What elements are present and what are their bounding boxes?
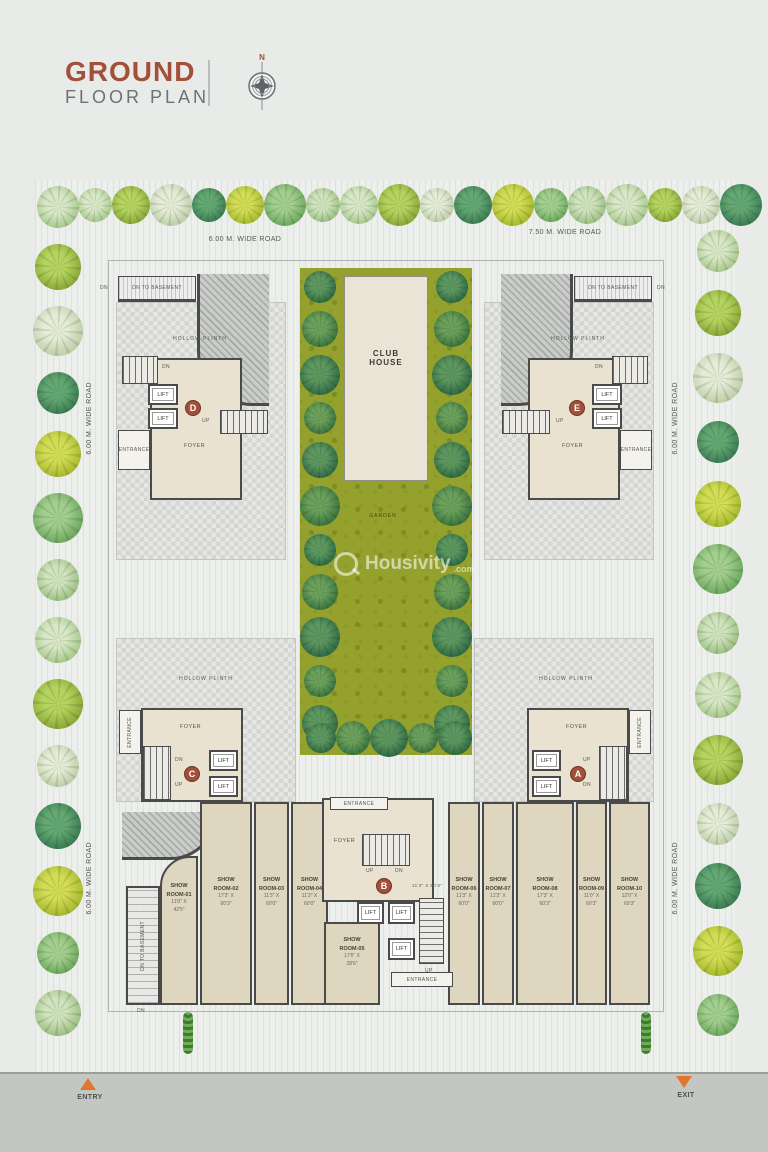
- showroom-09: SHOWROOM-0911'0" X60'3": [576, 802, 607, 1005]
- showroom-01: SHOWROOM-0111'0" X42'5": [160, 856, 198, 1005]
- foyer-e-label: FOYER: [562, 443, 583, 449]
- entrance-b-top: ENTRANCE: [330, 797, 388, 810]
- lift-b-1: LIFT: [357, 902, 384, 924]
- garden-tree-column-left: [301, 271, 339, 741]
- tree-icon: [302, 442, 338, 478]
- entrance-a: ENTRANCE: [629, 710, 651, 754]
- tree-icon: [697, 803, 739, 845]
- title-line2: FLOOR PLAN: [65, 86, 209, 109]
- entrance-b-top-label: ENTRANCE: [344, 801, 375, 807]
- lift-label: LIFT: [541, 758, 552, 764]
- tree-icon: [420, 188, 454, 222]
- road-label-left-lower: 6.00 M. WIDE ROAD: [86, 842, 93, 915]
- dn-marker-ramp: DN: [137, 1008, 145, 1014]
- club-house: CLUB HOUSE: [344, 276, 428, 481]
- entrance-b-bottom-label: ENTRANCE: [407, 977, 438, 983]
- hollow-plinth-label-e1: HOLLOW PLINTH: [551, 336, 605, 342]
- tree-icon: [35, 431, 81, 477]
- watermark-logo-icon: [334, 552, 358, 576]
- showroom-08: SHOWROOM-0817'3" X60'3": [516, 802, 574, 1005]
- watermark-brand: Housivity: [365, 553, 451, 575]
- tree-icon: [304, 665, 336, 697]
- stairs-b-up-label: UP: [366, 868, 374, 874]
- tree-column-right: [694, 230, 742, 1036]
- tree-icon: [37, 559, 79, 601]
- stairs-a: [599, 746, 627, 800]
- basement-ramp-d-label: DN TO BASEMENT: [132, 285, 182, 291]
- stairs-e-upper: [612, 356, 648, 384]
- tree-icon: [695, 672, 741, 718]
- title-divider: [208, 60, 210, 106]
- tree-icon: [35, 617, 81, 663]
- lift-label: LIFT: [601, 416, 612, 422]
- tree-icon: [695, 290, 741, 336]
- foyer-a-label: FOYER: [566, 724, 587, 730]
- tree-icon: [192, 188, 226, 222]
- bottom-road: [0, 1072, 768, 1152]
- tree-icon: [695, 481, 741, 527]
- club-house-label2: HOUSE: [345, 358, 427, 367]
- tree-icon: [648, 188, 682, 222]
- tree-icon: [112, 186, 150, 224]
- basement-ramp-e: DN TO BASEMENT: [574, 276, 652, 302]
- tree-icon: [697, 994, 739, 1036]
- stairs-e-lower: [502, 410, 550, 434]
- tree-icon: [33, 866, 83, 916]
- dn-marker-d: DN: [100, 285, 108, 291]
- tree-icon: [304, 534, 336, 566]
- stairs-b-side: [419, 898, 444, 964]
- stairs-a-up-label: UP: [583, 757, 591, 763]
- showroom-02: SHOWROOM-0217'3" X60'3": [200, 802, 252, 1005]
- lift-label: LIFT: [396, 946, 407, 952]
- stairs-b-main: [362, 834, 410, 866]
- road-label-left-upper: 6.00 M. WIDE ROAD: [86, 382, 93, 455]
- tree-icon: [306, 188, 340, 222]
- dn-marker-e: DN: [657, 285, 665, 291]
- garden-label: GARDEN: [369, 513, 396, 519]
- hollow-plinth-label-c: HOLLOW PLINTH: [179, 676, 233, 682]
- lift-d-1: LIFT: [148, 384, 178, 405]
- showroom-07: SHOWROOM-0711'3" X60'0": [482, 802, 514, 1005]
- tree-icon: [370, 719, 408, 757]
- lift-b-2: LIFT: [388, 902, 415, 924]
- entrance-c-label: ENTRANCE: [127, 717, 133, 748]
- entrance-d-label: ENTRANCE: [119, 447, 150, 453]
- tower-b-badge: B: [376, 878, 392, 894]
- basement-ramp-showroom-label: DN TO BASEMENT: [140, 921, 146, 971]
- tree-icon: [720, 184, 762, 226]
- foyer-d-label: FOYER: [184, 443, 205, 449]
- entrance-a-label: ENTRANCE: [637, 717, 643, 748]
- tree-icon: [302, 574, 338, 610]
- watermark-tld: .com: [454, 564, 475, 574]
- stairs-d-lower: [220, 410, 268, 434]
- road-label-top-left: 6.00 M. WIDE ROAD: [209, 236, 282, 243]
- tree-row-top: [78, 183, 722, 227]
- foyer-b-label: FOYER: [334, 838, 355, 844]
- tree-icon: [78, 188, 112, 222]
- tree-icon: [697, 421, 739, 463]
- tree-icon: [35, 990, 81, 1036]
- tree-icon: [33, 493, 83, 543]
- entrance-e-label: ENTRANCE: [621, 447, 652, 453]
- tree-icon: [454, 186, 492, 224]
- compass-icon: N: [240, 50, 284, 112]
- tree-icon: [432, 355, 472, 395]
- lift-label: LIFT: [157, 416, 168, 422]
- tree-icon: [300, 486, 340, 526]
- tower-e-badge: E: [569, 400, 585, 416]
- tree-icon: [693, 926, 743, 976]
- entry-label: ENTRY: [77, 1094, 102, 1101]
- road-label-right-upper: 6.00 M. WIDE ROAD: [672, 382, 679, 455]
- tree-icon: [33, 679, 83, 729]
- tree-icon: [408, 723, 438, 753]
- entrance-b-bottom: ENTRANCE: [391, 972, 453, 987]
- stairs-a-dn-label: DN: [583, 782, 591, 788]
- exit-arrow-icon: [676, 1076, 692, 1088]
- tree-icon: [300, 355, 340, 395]
- stairs-d-up-label: UP: [202, 418, 210, 424]
- tree-icon: [434, 311, 470, 347]
- foyer-c-label: FOYER: [180, 724, 201, 730]
- tree-icon: [150, 184, 192, 226]
- page-title: GROUND FLOOR PLAN: [65, 58, 209, 109]
- basement-ramp-showroom: DN TO BASEMENT: [126, 886, 160, 1005]
- entrance-d: ENTRANCE: [118, 430, 150, 470]
- tree-icon: [302, 311, 338, 347]
- tree-icon: [306, 723, 336, 753]
- tower-a-badge: A: [570, 766, 586, 782]
- tree-icon: [695, 863, 741, 909]
- compass-north-label: N: [259, 53, 265, 62]
- tree-icon: [37, 372, 79, 414]
- tower-c-badge: C: [184, 766, 200, 782]
- tree-icon: [534, 188, 568, 222]
- tree-icon: [682, 186, 720, 224]
- lift-c-1: LIFT: [209, 750, 238, 771]
- entrance-e: ENTRANCE: [620, 430, 652, 470]
- tree-icon: [304, 402, 336, 434]
- lift-a-1: LIFT: [532, 750, 561, 771]
- stairs-c-dn-label: DN: [175, 757, 183, 763]
- tree-icon: [568, 186, 606, 224]
- tree-icon: [300, 617, 340, 657]
- lift-b-3: LIFT: [388, 938, 415, 960]
- tree-icon: [436, 665, 468, 697]
- tree-icon: [226, 186, 264, 224]
- lift-e-1: LIFT: [592, 384, 622, 405]
- stairs-e-dn-label: DN: [595, 364, 603, 370]
- tower-d-badge: D: [185, 400, 201, 416]
- lift-c-2: LIFT: [209, 776, 238, 797]
- tree-icon: [693, 544, 743, 594]
- title-line1: GROUND: [65, 58, 209, 86]
- hedge-right: [641, 1012, 651, 1054]
- lift-a-2: LIFT: [532, 776, 561, 797]
- tree-icon: [378, 184, 420, 226]
- tree-icon: [693, 735, 743, 785]
- road-label-right-lower: 6.00 M. WIDE ROAD: [672, 842, 679, 915]
- tree-icon: [492, 184, 534, 226]
- tree-icon: [432, 486, 472, 526]
- tree-icon: [37, 932, 79, 974]
- tree-icon: [35, 803, 81, 849]
- stairs-e-up-label: UP: [556, 418, 564, 424]
- tree-icon: [697, 612, 739, 654]
- basement-ramp-d: DN TO BASEMENT: [118, 276, 196, 302]
- tree-icon: [304, 271, 336, 303]
- tree-icon: [33, 306, 83, 356]
- hollow-plinth-label-d1: HOLLOW PLINTH: [173, 336, 227, 342]
- stairs-c: [143, 746, 171, 800]
- showroom-10: SHOWROOM-1012'0" X60'3": [609, 802, 650, 1005]
- lift-label: LIFT: [365, 910, 376, 916]
- lift-label: LIFT: [157, 392, 168, 398]
- tree-icon: [436, 271, 468, 303]
- basement-ramp-e-label: DN TO BASEMENT: [588, 285, 638, 291]
- lift-label: LIFT: [601, 392, 612, 398]
- entrance-c: ENTRANCE: [119, 710, 141, 754]
- tree-icon: [434, 574, 470, 610]
- garden-tree-column-right: [433, 271, 471, 741]
- tree-icon: [264, 184, 306, 226]
- tree-column-left: [34, 186, 82, 1036]
- lift-e-2: LIFT: [592, 408, 622, 429]
- tree-icon: [37, 186, 79, 228]
- tree-icon: [37, 745, 79, 787]
- dimension-beside-b: 11'3" X 50'3": [412, 883, 442, 888]
- entry-arrow-icon: [80, 1078, 96, 1090]
- showroom-05: SHOWROOM-0517'6" X28'6": [324, 922, 380, 1005]
- tree-icon: [434, 442, 470, 478]
- tree-icon: [35, 244, 81, 290]
- tree-icon: [340, 186, 378, 224]
- tree-icon: [432, 617, 472, 657]
- stairs-c-up-label: UP: [175, 782, 183, 788]
- garden-tree-row-bottom: [306, 720, 466, 756]
- lift-label: LIFT: [541, 784, 552, 790]
- stairs-d-upper: [122, 356, 158, 384]
- exit-label: EXIT: [677, 1092, 694, 1099]
- stairs-b-dn-label: DN: [395, 868, 403, 874]
- tree-icon: [436, 402, 468, 434]
- hedge-left: [183, 1012, 193, 1054]
- stairs-d-dn-label: DN: [162, 364, 170, 370]
- hollow-plinth-label-a: HOLLOW PLINTH: [539, 676, 593, 682]
- showroom-03: SHOWROOM-0311'3" X60'0": [254, 802, 289, 1005]
- tree-icon: [438, 721, 472, 755]
- lift-label: LIFT: [218, 784, 229, 790]
- tree-icon: [606, 184, 648, 226]
- club-house-label1: CLUB: [345, 349, 427, 358]
- lift-d-2: LIFT: [148, 408, 178, 429]
- watermark: Housivity .com: [334, 552, 475, 576]
- lift-label: LIFT: [396, 910, 407, 916]
- road-label-top-right: 7.50 M. WIDE ROAD: [529, 229, 602, 236]
- lift-label: LIFT: [218, 758, 229, 764]
- tree-icon: [697, 230, 739, 272]
- tree-icon: [693, 353, 743, 403]
- tree-icon: [336, 721, 370, 755]
